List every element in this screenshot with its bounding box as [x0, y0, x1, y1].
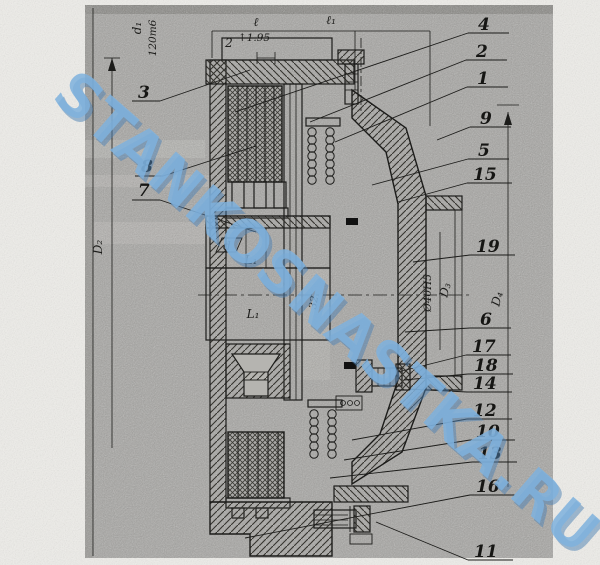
label-shaft-fit: 120m6 [147, 19, 159, 56]
callout-18: 18 [474, 356, 498, 376]
callout-5: 5 [478, 141, 490, 161]
rim-flange-upper [426, 196, 462, 210]
label-shaft-d1: d₁ [130, 22, 144, 35]
drawing-canvas: ℓ ℓ₁ 2 ↑1.95 d₁ 120m6 D₂ d L₁ L₁ 32 Ø40H… [0, 0, 600, 565]
label-note-count: 2 [224, 36, 233, 50]
callout-15: 15 [473, 165, 497, 185]
callout-9: 9 [480, 109, 492, 129]
callout-1: 1 [477, 69, 489, 89]
spool-web [244, 372, 268, 380]
label-diameter-D2: D₂ [91, 240, 105, 256]
callout-19: 19 [476, 237, 500, 257]
top-bolt-head [338, 50, 364, 64]
callout-3: 3 [138, 83, 150, 103]
callout-4: 4 [478, 15, 490, 35]
label-length-l1: ℓ₁ [326, 13, 336, 27]
flange-bolt-head [354, 506, 370, 532]
bell-foot [334, 486, 408, 502]
label-body-L1: L₁ [246, 307, 260, 321]
label-bore-fit: Ø40H5 [422, 274, 434, 313]
lower-plate-pack [228, 432, 284, 498]
callout-6: 6 [480, 310, 492, 330]
top-cap-flange [206, 60, 354, 84]
label-note-value: ↑1.95 [238, 32, 270, 44]
label-length-l: ℓ [254, 15, 259, 29]
drum-wall [210, 60, 226, 502]
seal-upper [346, 218, 358, 225]
callout-14: 14 [473, 374, 497, 394]
scanned-drawing-page: ℓ ℓ₁ 2 ↑1.95 d₁ 120m6 D₂ d L₁ L₁ 32 Ø40H… [0, 0, 600, 565]
callout-2: 2 [475, 42, 488, 62]
callout-17: 17 [472, 337, 496, 357]
callout-11: 11 [474, 542, 498, 562]
